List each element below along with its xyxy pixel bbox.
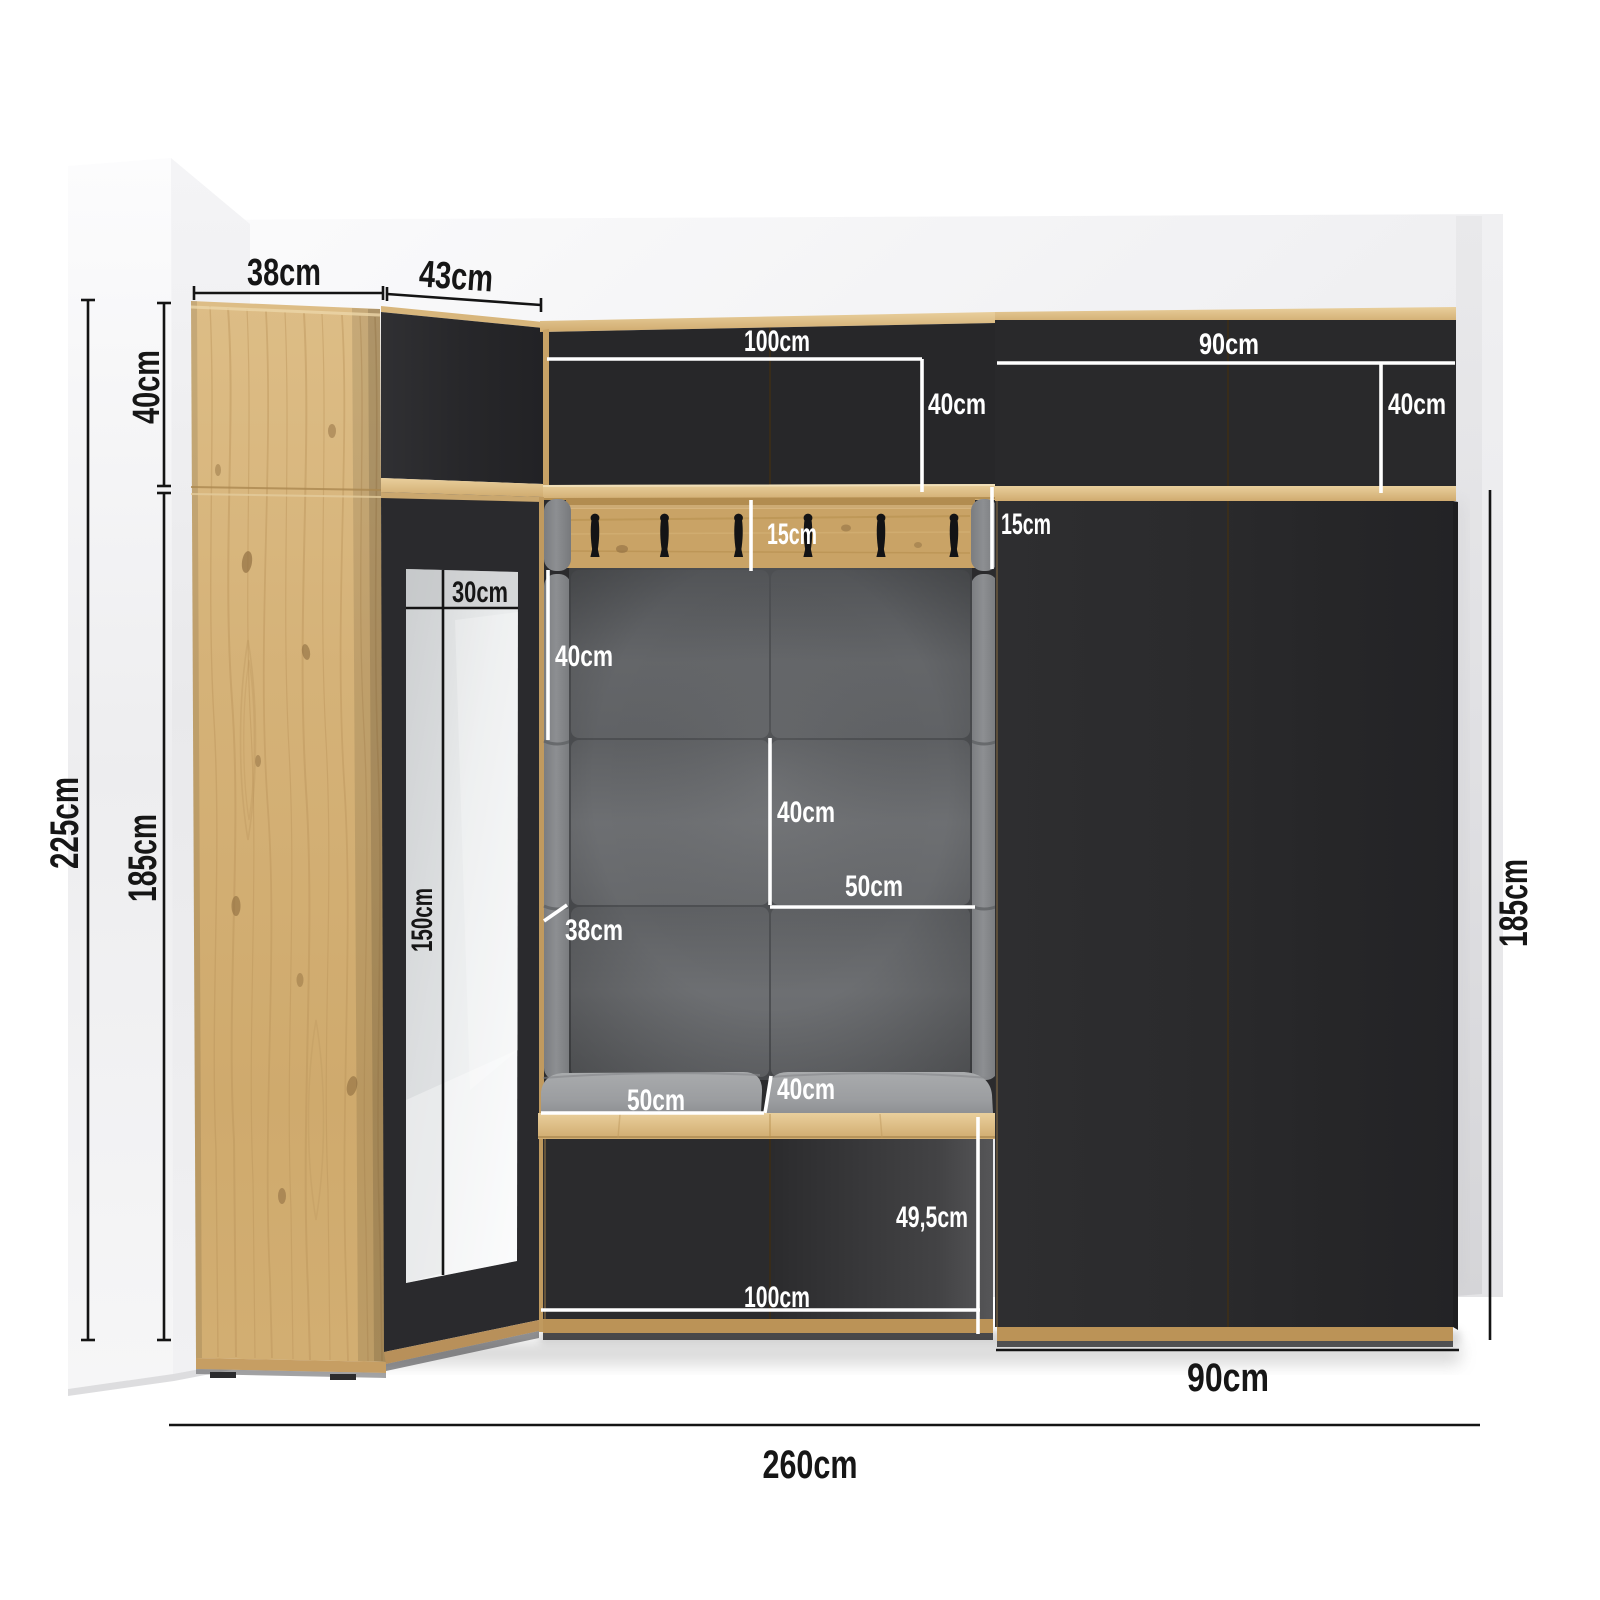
svg-text:38cm: 38cm: [247, 252, 321, 294]
svg-text:40cm: 40cm: [1388, 388, 1446, 421]
svg-text:40cm: 40cm: [777, 1073, 835, 1106]
svg-text:50cm: 50cm: [627, 1084, 685, 1117]
svg-text:40cm: 40cm: [928, 388, 986, 421]
svg-text:49,5cm: 49,5cm: [896, 1201, 968, 1234]
svg-text:260cm: 260cm: [763, 1443, 858, 1487]
svg-text:100cm: 100cm: [744, 325, 810, 358]
svg-text:50cm: 50cm: [845, 870, 903, 903]
svg-text:185cm: 185cm: [121, 814, 165, 902]
svg-text:15cm: 15cm: [1001, 508, 1051, 541]
svg-text:15cm: 15cm: [767, 518, 817, 551]
svg-text:40cm: 40cm: [777, 796, 835, 829]
svg-text:185cm: 185cm: [1492, 859, 1536, 947]
svg-text:43cm: 43cm: [418, 253, 495, 300]
svg-text:90cm: 90cm: [1187, 1356, 1269, 1400]
svg-text:30cm: 30cm: [452, 576, 508, 609]
svg-text:40cm: 40cm: [126, 350, 168, 424]
svg-text:100cm: 100cm: [744, 1281, 810, 1314]
svg-text:38cm: 38cm: [565, 914, 623, 947]
svg-text:225cm: 225cm: [43, 777, 87, 869]
svg-text:150cm: 150cm: [406, 888, 439, 952]
svg-text:40cm: 40cm: [555, 640, 613, 673]
svg-text:90cm: 90cm: [1199, 328, 1259, 361]
